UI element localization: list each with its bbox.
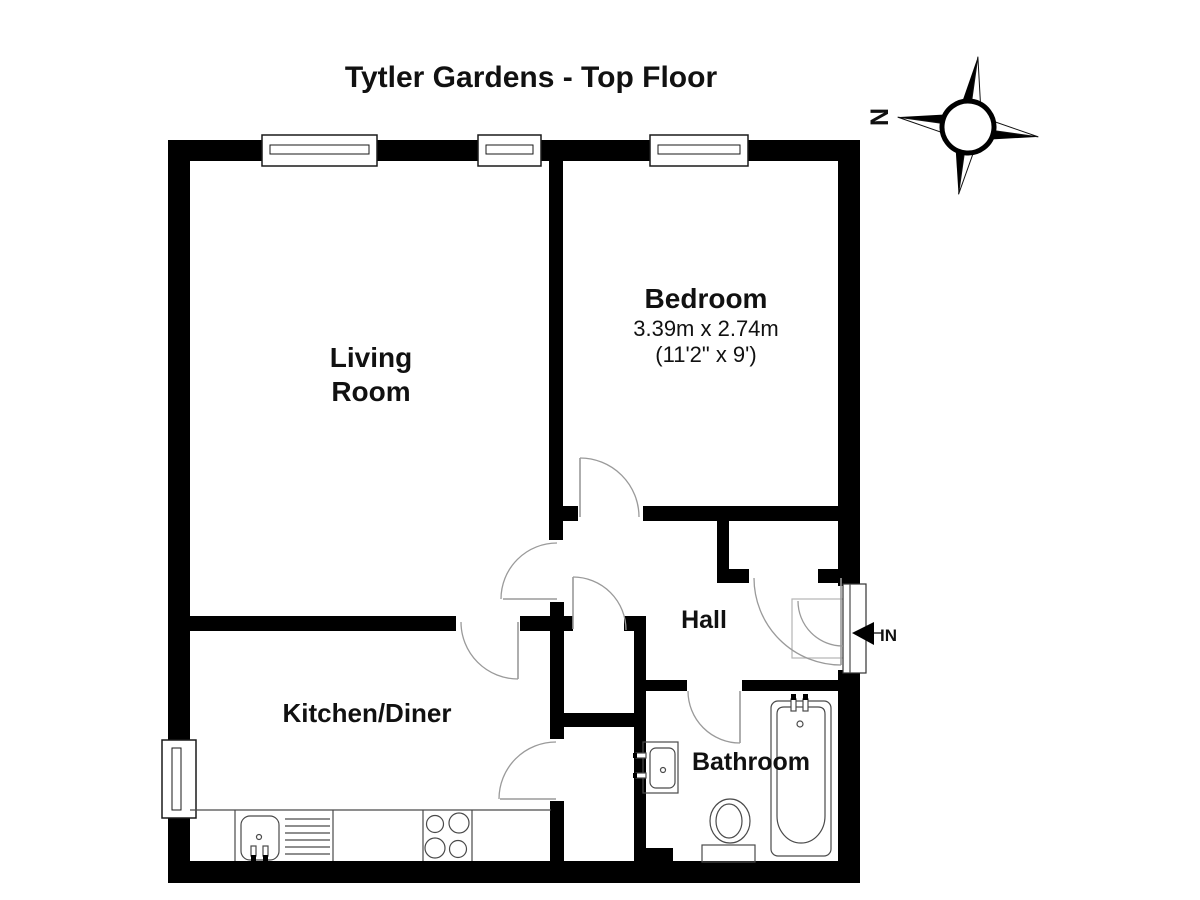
wall-bathroom-north-east bbox=[742, 680, 838, 691]
wall-kitchen-east-upper bbox=[550, 602, 564, 739]
wall-cupboard-divider bbox=[563, 713, 646, 727]
compass-rose bbox=[888, 47, 1048, 204]
bathroom-basin bbox=[633, 753, 637, 758]
page-title: Tytler Gardens - Top Floor bbox=[345, 61, 718, 94]
kitchen-hob bbox=[450, 841, 467, 858]
wall-bathroom-west-foot bbox=[634, 848, 673, 863]
bathtub bbox=[803, 694, 808, 700]
bathtub bbox=[803, 699, 808, 711]
floor-plan-page: Tytler Gardens - Top FloorLivingRoomBedr… bbox=[0, 0, 1200, 900]
window-kitchen bbox=[162, 740, 196, 818]
door-hall-cupboard-swing bbox=[573, 577, 626, 630]
door-bedroom-swing bbox=[580, 458, 639, 517]
living-room-label-2: Room bbox=[331, 376, 410, 407]
kitchen-hob bbox=[425, 838, 445, 858]
wall-divider-cross-stub bbox=[520, 616, 573, 631]
kitchen-sink bbox=[241, 816, 279, 860]
bathtub bbox=[797, 721, 803, 727]
wall-bathroom-north-west bbox=[646, 680, 687, 691]
entrance-door-frame bbox=[792, 599, 843, 658]
bathroom-basin bbox=[636, 753, 646, 758]
bedroom-dims-metric: 3.39m x 2.74m bbox=[633, 316, 779, 341]
wall-bedroom-south-stub bbox=[562, 506, 578, 521]
hall-label: Hall bbox=[681, 606, 727, 634]
bedroom-label: Bedroom bbox=[645, 283, 768, 314]
window-living-small bbox=[478, 135, 541, 166]
door-hall-closet-swing bbox=[754, 578, 841, 665]
wall-outer-right bbox=[838, 140, 860, 883]
kitchen-sink bbox=[257, 835, 262, 840]
floor-plan-svg: Tytler Gardens - Top FloorLivingRoomBedr… bbox=[0, 0, 1200, 900]
wall-hall-closet-east-stub bbox=[818, 569, 838, 583]
bathtub bbox=[791, 699, 796, 711]
door-kitchen-swing bbox=[461, 622, 518, 679]
kitchen-sink bbox=[251, 846, 256, 856]
compass-circle bbox=[939, 98, 998, 157]
window-living-large bbox=[262, 135, 377, 166]
wall-outer-bottom bbox=[168, 861, 860, 883]
door-kitchen-cupboard-swing bbox=[499, 742, 556, 799]
bathtub bbox=[771, 701, 831, 856]
bathroom-basin bbox=[661, 768, 666, 773]
kitchen-sink bbox=[263, 846, 268, 856]
bedroom-dims-imperial: (11'2" x 9') bbox=[655, 342, 756, 367]
bathroom-basin bbox=[633, 773, 637, 778]
door-living-room-swing bbox=[501, 543, 557, 599]
kitchen-sink bbox=[263, 855, 268, 861]
wall-bedroom-south-main bbox=[643, 506, 838, 521]
kitchen-label: Kitchen/Diner bbox=[282, 698, 451, 728]
bathroom-basin bbox=[636, 773, 646, 778]
wall-bathroom-west bbox=[634, 616, 646, 848]
entrance-in-label: IN bbox=[880, 626, 897, 645]
kitchen-hob bbox=[449, 813, 469, 833]
toilet bbox=[716, 804, 742, 838]
kitchen-sink bbox=[251, 855, 256, 861]
bathroom-label: Bathroom bbox=[692, 748, 810, 776]
wall-hall-closet-south-bar bbox=[717, 569, 749, 583]
wall-kitchen-east-lower bbox=[550, 801, 564, 863]
bathtub bbox=[791, 694, 796, 700]
kitchen-hob bbox=[427, 816, 444, 833]
compass-north-label: N bbox=[866, 108, 894, 126]
door-bathroom-swing bbox=[688, 691, 740, 743]
living-room-label-1: Living bbox=[330, 342, 412, 373]
wall-living-kitchen-divider bbox=[190, 616, 456, 631]
window-bedroom bbox=[650, 135, 748, 166]
wall-partition-bedroom-west bbox=[549, 158, 563, 540]
toilet bbox=[702, 845, 755, 862]
wall-hall-closet-west-stub bbox=[717, 521, 729, 577]
